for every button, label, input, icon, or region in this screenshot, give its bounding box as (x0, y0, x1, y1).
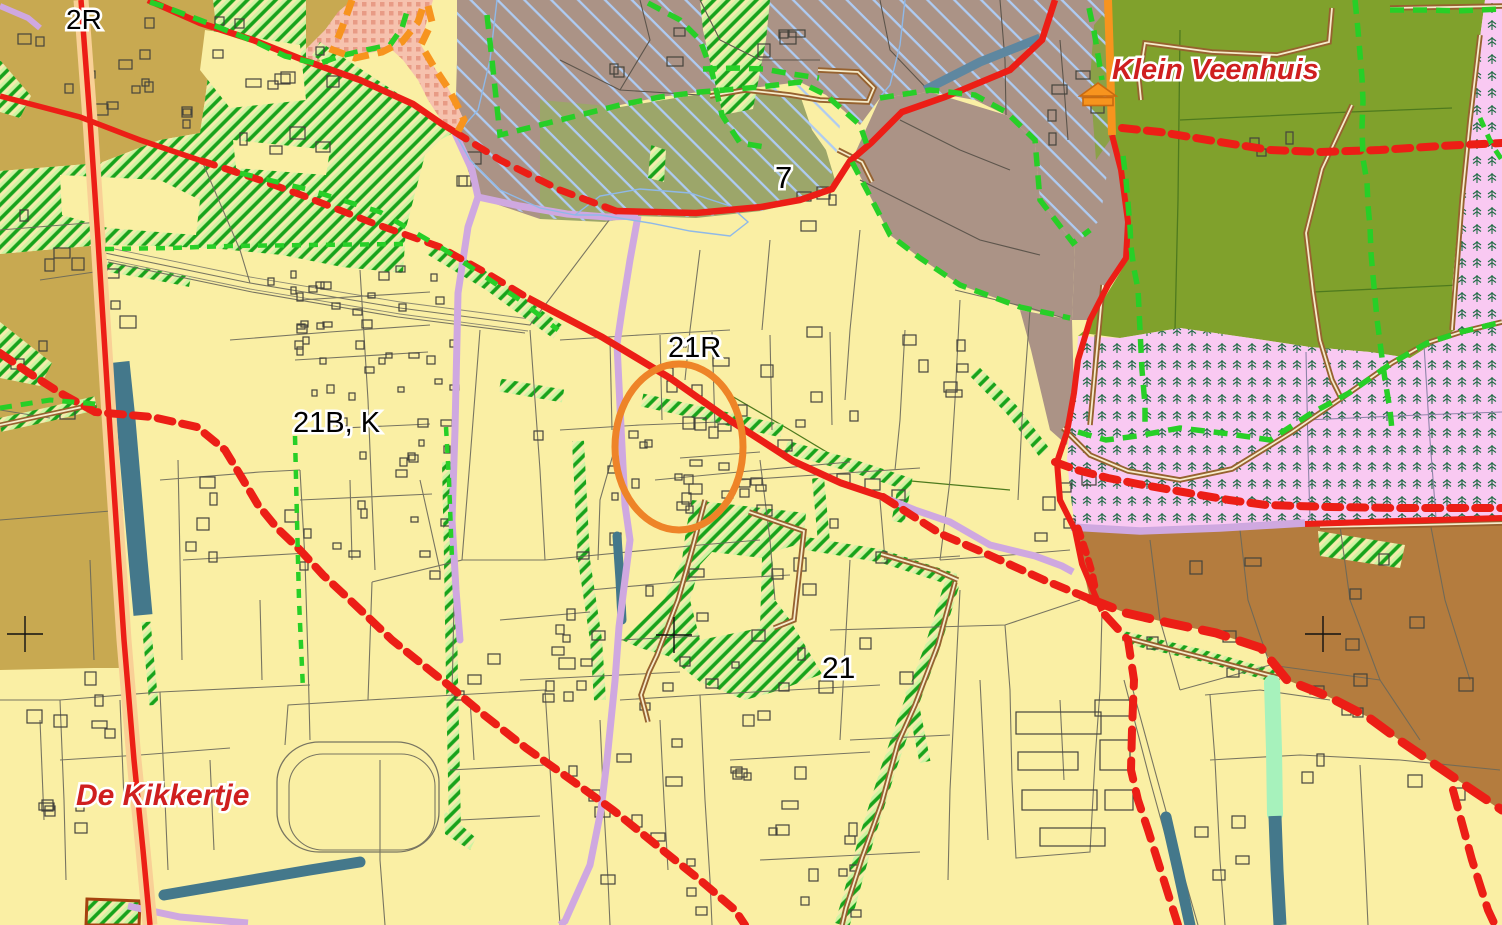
svg-text:7: 7 (775, 160, 792, 195)
svg-text:Klein Veenhuis: Klein Veenhuis (1112, 54, 1319, 86)
svg-text:21B, K: 21B, K (293, 407, 381, 439)
svg-text:21R: 21R (668, 332, 721, 364)
svg-text:De Kikkertje: De Kikkertje (76, 779, 249, 812)
svg-text:21: 21 (822, 652, 855, 685)
svg-text:2R: 2R (66, 4, 102, 35)
